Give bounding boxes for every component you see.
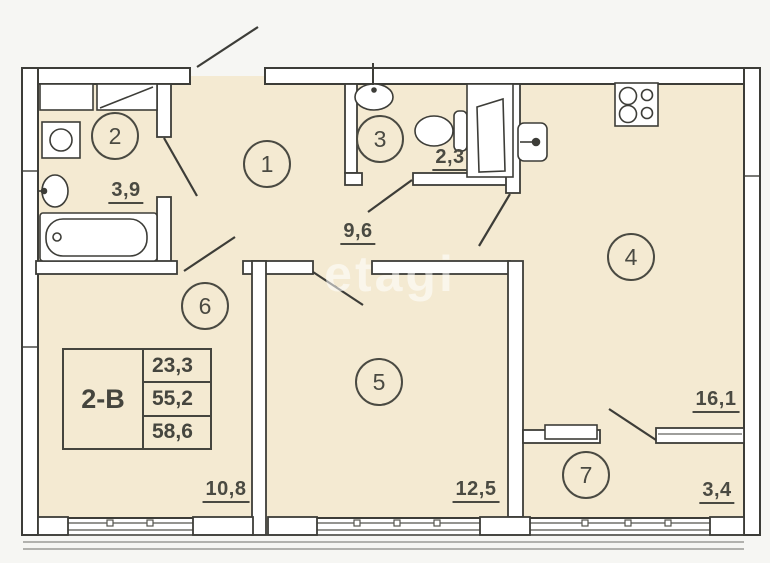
room-number-hall: 1 bbox=[243, 140, 291, 188]
area-label-bath: 3,9 bbox=[108, 180, 143, 204]
area-label-kitchen: 16,1 bbox=[693, 389, 740, 413]
area-label-wc: 2,3 bbox=[432, 147, 467, 171]
bath-right-wall-lower bbox=[157, 197, 171, 263]
left-wall bbox=[22, 68, 38, 535]
room-number-room6: 6 bbox=[181, 282, 229, 330]
bathtub-icon bbox=[40, 213, 157, 261]
room-number-room5: 5 bbox=[355, 358, 403, 406]
entrance-door-swing bbox=[197, 27, 258, 67]
top-wall-main bbox=[265, 68, 744, 84]
room-number-kitchen: 4 bbox=[607, 233, 655, 281]
area-label-hall: 9,6 bbox=[340, 221, 375, 245]
unit-total-area: 58,6 bbox=[144, 415, 210, 448]
room-number-balcony: 7 bbox=[562, 451, 610, 499]
room5-kitchen-divider bbox=[508, 261, 523, 517]
kitchen-sink-icon bbox=[518, 123, 547, 161]
washing-machine-icon bbox=[42, 122, 80, 158]
exterior-sill-lines bbox=[23, 542, 744, 549]
area-label-balcony: 3,4 bbox=[699, 480, 734, 504]
room-number-bath: 2 bbox=[91, 112, 139, 160]
unit-living-area: 23,3 bbox=[144, 350, 210, 381]
door-panel bbox=[467, 84, 513, 177]
cabinet bbox=[40, 84, 93, 110]
hall-room5-wall-right bbox=[372, 261, 510, 274]
unit-info-table: 2-В 23,3 55,2 58,6 bbox=[62, 348, 212, 450]
top-wall-left bbox=[38, 68, 190, 84]
window-sill bbox=[545, 425, 597, 439]
unit-type: 2-В bbox=[64, 350, 144, 448]
wc-left-wall-foot bbox=[345, 173, 362, 185]
bottom-wall bbox=[22, 517, 760, 549]
bath-bottom-wall bbox=[36, 261, 177, 274]
stove-icon bbox=[615, 83, 658, 126]
room6-room5-divider bbox=[252, 261, 266, 535]
unit-area: 55,2 bbox=[144, 381, 210, 414]
right-wall bbox=[744, 68, 760, 535]
floor-plan: etagi 1 2 3 4 5 6 7 3,9 2,3 9,6 16,1 10,… bbox=[0, 0, 770, 563]
area-label-room5: 12,5 bbox=[453, 479, 500, 503]
floor-plan-drawing bbox=[0, 0, 770, 563]
bath-right-wall-upper bbox=[157, 84, 171, 137]
balcony-window-unit bbox=[656, 428, 744, 443]
area-label-room6: 10,8 bbox=[203, 479, 250, 503]
room-number-wc: 3 bbox=[356, 115, 404, 163]
